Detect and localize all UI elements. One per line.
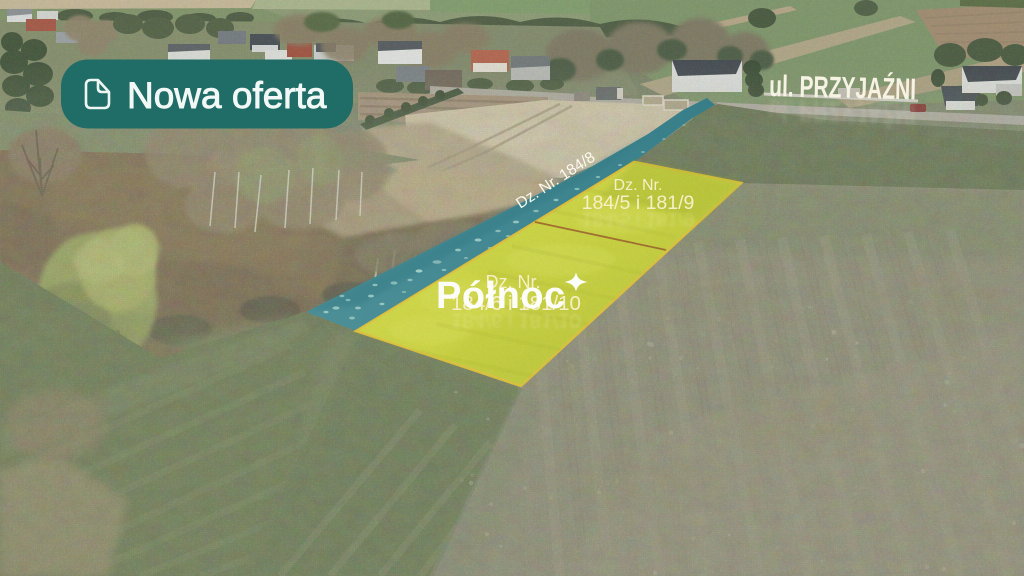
svg-text:Nowa oferta: Nowa oferta (127, 75, 327, 116)
svg-text:Północ: Północ (436, 275, 566, 317)
svg-text:184/5 i 181/9: 184/5 i 181/9 (582, 208, 695, 230)
svg-text:ul. PRZYJAŹNI: ul. PRZYJAŹNI (768, 93, 916, 130)
